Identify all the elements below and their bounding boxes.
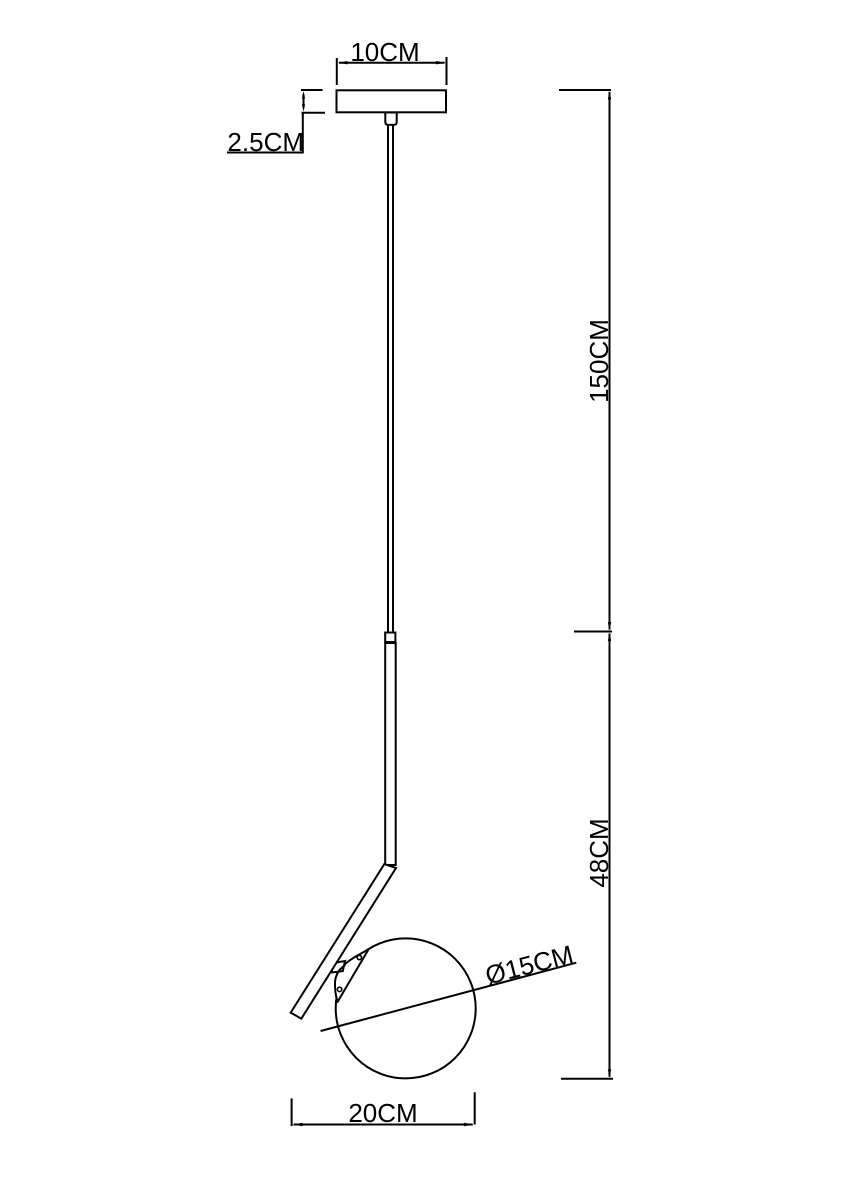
svg-text:48CM: 48CM xyxy=(584,818,614,887)
svg-text:2.5CM: 2.5CM xyxy=(227,127,304,157)
svg-text:20CM: 20CM xyxy=(348,1098,417,1128)
svg-text:150CM: 150CM xyxy=(584,319,614,403)
